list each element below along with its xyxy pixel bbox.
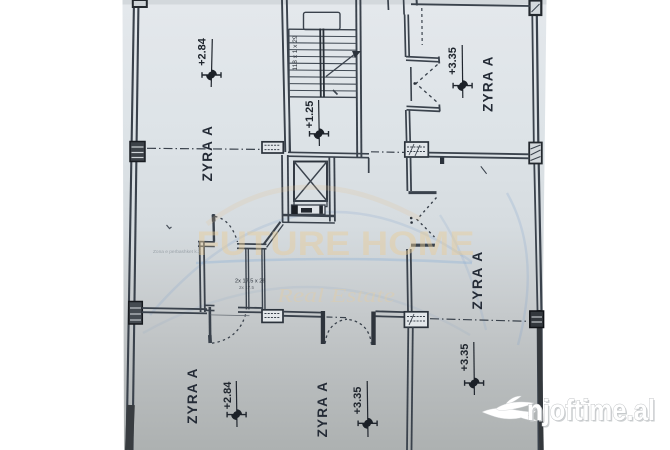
svg-text:njoftime.al: njoftime.al — [527, 394, 655, 427]
svg-text:+2.84: +2.84 — [197, 37, 209, 66]
svg-text:ZYRA A: ZYRA A — [200, 125, 215, 181]
svg-text:FUTURE HOME: FUTURE HOME — [197, 225, 475, 263]
svg-text:+3.35: +3.35 — [447, 47, 459, 75]
svg-text:+2.84: +2.84 — [222, 381, 234, 410]
svg-text:Real Estate: Real Estate — [276, 285, 395, 307]
svg-text:2x 17.5 x 26: 2x 17.5 x 26 — [235, 279, 265, 285]
svg-text:ZYRA A: ZYRA A — [481, 55, 496, 111]
svg-text:ZYRA A: ZYRA A — [315, 381, 330, 437]
svg-text:ZYRA A: ZYRA A — [185, 367, 200, 423]
svg-text:2x 17.5: 2x 17.5 — [239, 285, 255, 290]
svg-text:Zona e perbashket k.2: Zona e perbashket k.2 — [153, 249, 201, 255]
svg-text:+3.35: +3.35 — [352, 387, 364, 415]
svg-text:+3.35: +3.35 — [459, 344, 471, 372]
svg-text:118 x 1 x 29: 118 x 1 x 29 — [292, 35, 299, 70]
svg-text:+1.25: +1.25 — [304, 101, 316, 129]
